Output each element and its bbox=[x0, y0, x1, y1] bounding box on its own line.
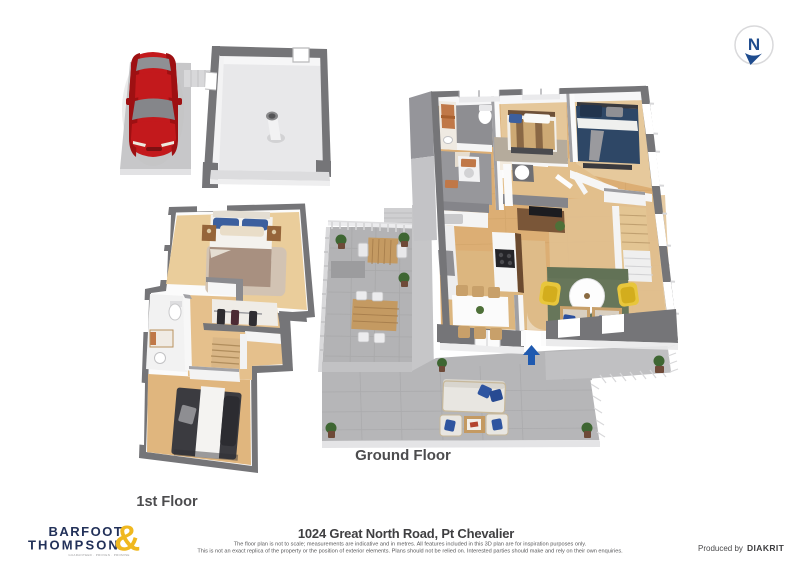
svg-text:N: N bbox=[748, 35, 760, 54]
svg-text:GUARANTEED · PROVEN · PROMISE: GUARANTEED · PROVEN · PROMISE bbox=[68, 553, 129, 557]
svg-text:This is not an exact replica o: This is not an exact replica of the prop… bbox=[197, 549, 623, 555]
svg-text:The floor plan is not to scale: The floor plan is not to scale; measurem… bbox=[234, 542, 587, 548]
svg-text:Produced by: Produced by bbox=[698, 544, 743, 553]
svg-text:1st Floor: 1st Floor bbox=[136, 494, 198, 510]
svg-text:THOMPSON: THOMPSON bbox=[28, 538, 120, 553]
svg-text:DIAKRIT: DIAKRIT bbox=[747, 543, 785, 553]
svg-text:1024 Great North Road, Pt Chev: 1024 Great North Road, Pt Chevalier bbox=[298, 526, 514, 541]
svg-text:Ground Floor: Ground Floor bbox=[355, 447, 451, 464]
